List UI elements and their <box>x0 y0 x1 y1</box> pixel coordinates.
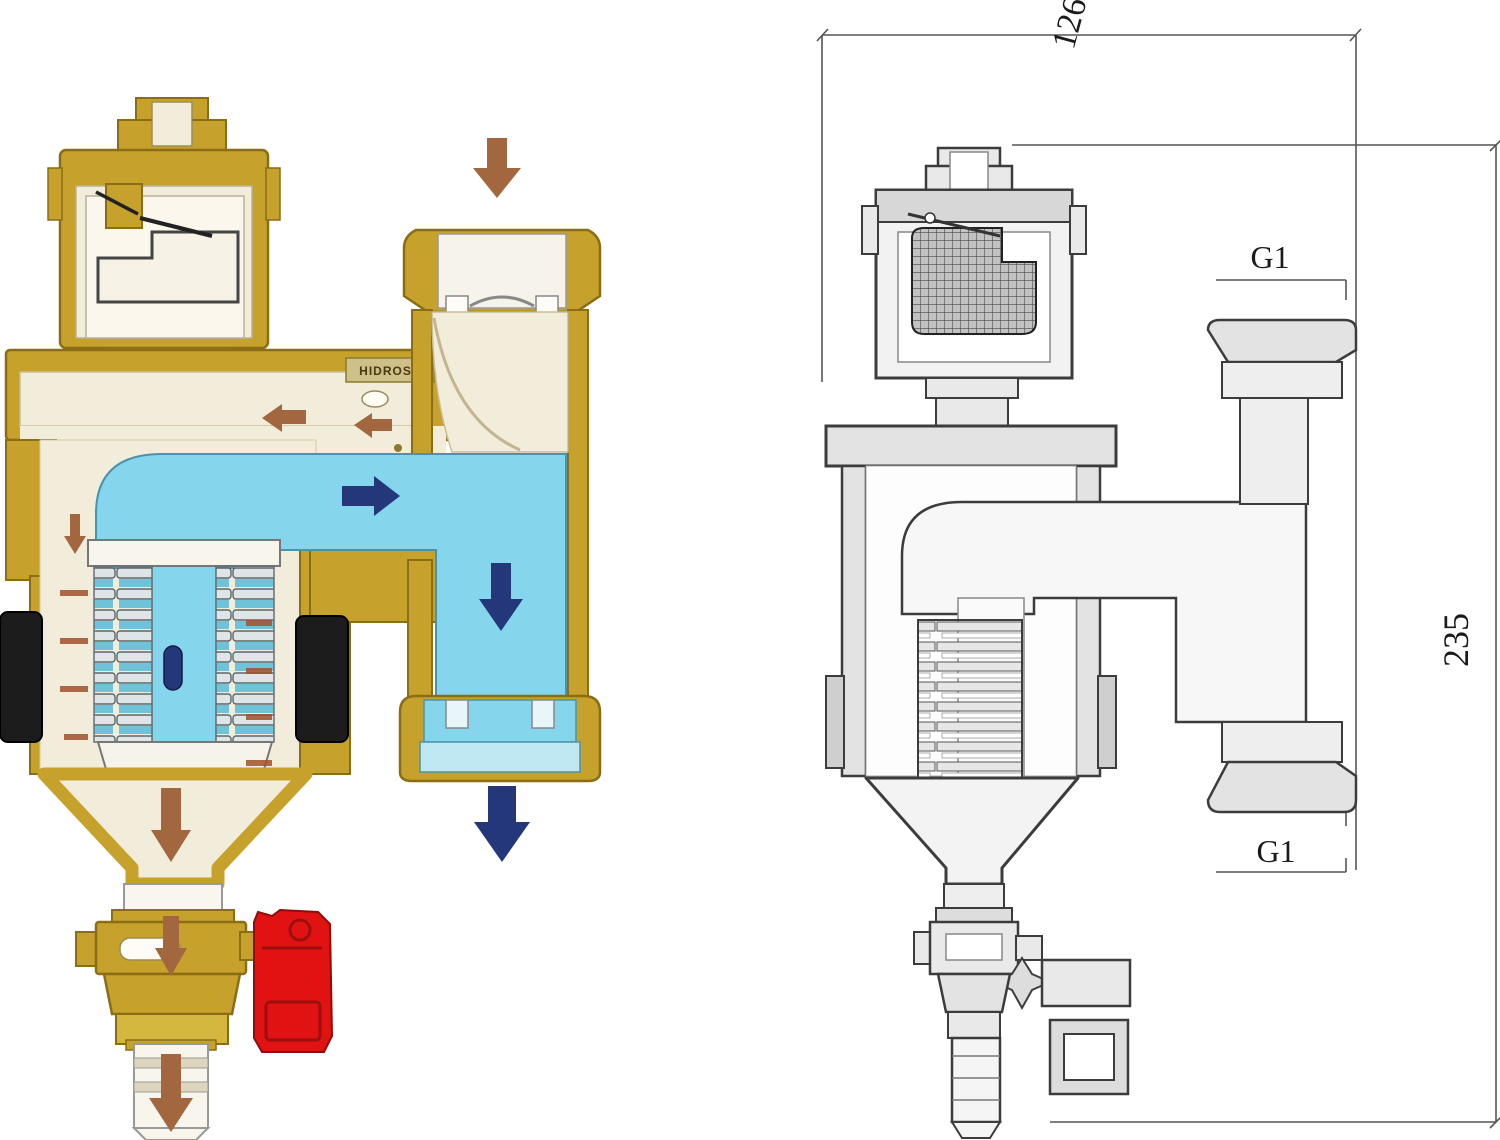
magnet-pocket-left <box>826 676 844 768</box>
drain-lever <box>254 910 332 1052</box>
port-top-dimension-label: G1 <box>1250 239 1289 275</box>
outlet-port-outline <box>1208 722 1356 812</box>
screenshot-root: HIDROSS <box>0 0 1500 1140</box>
funnel-outline <box>866 778 1078 922</box>
port-bottom-dimension-label: G1 <box>1256 833 1295 869</box>
magnet-pocket-right <box>1098 676 1116 768</box>
dimension-height-label: 235 <box>1436 613 1476 667</box>
drain-outline <box>914 922 1050 1138</box>
water-center-column <box>152 550 216 764</box>
vent-cap-slot <box>152 102 192 146</box>
outlet-bore <box>420 742 580 772</box>
magnet-right <box>296 616 348 742</box>
dimension-width-label: 126 <box>1045 0 1094 53</box>
filter-mesh-left <box>94 566 152 742</box>
cartridge-top-cap <box>88 540 280 566</box>
magnet-left <box>0 612 42 742</box>
drain-nut <box>104 974 240 1014</box>
left-cutaway-diagram: HIDROSS <box>0 0 760 1140</box>
outlet-flow-arrow-icon <box>474 786 530 862</box>
air-vent-outline <box>862 148 1086 426</box>
outlet-port-assembly <box>400 696 600 781</box>
hose-barb-outline <box>952 1038 1000 1122</box>
filter-mesh-outline <box>918 620 1022 782</box>
drain-lever-outline <box>1042 960 1130 1094</box>
inlet-flow-arrow-icon <box>473 138 521 198</box>
captured-particle <box>164 646 182 690</box>
inlet-port-outline <box>1208 320 1356 504</box>
right-line-drawing: 126 235 G1 G1 <box>760 0 1500 1140</box>
